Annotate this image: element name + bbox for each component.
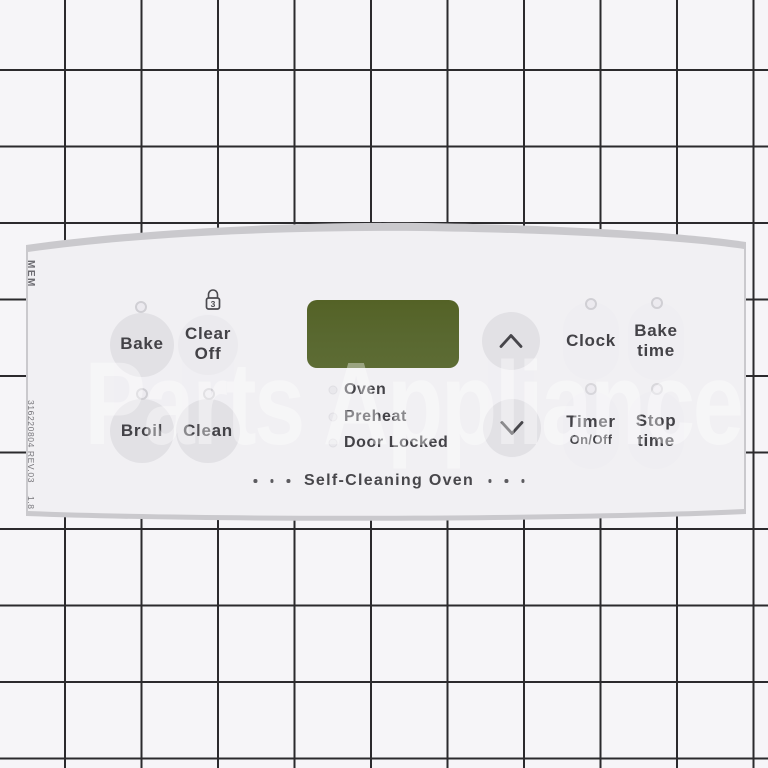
edge-label-mem: MEM <box>25 260 36 288</box>
edge-label-part-number: 316220804 REV.03 <box>26 400 36 483</box>
lock-hold-seconds: 3 <box>211 299 216 309</box>
product-photo-oven-keypad: Parts Appliance MEM 316220804 REV.03 1.8 <box>0 0 768 768</box>
edge-label-rev-extra: 1.8 <box>26 496 36 510</box>
bake-time-indicator-dot <box>651 297 663 309</box>
footer-dots-right <box>488 479 525 483</box>
clock-indicator-dot <box>585 298 597 310</box>
footer-dots-left <box>253 479 290 483</box>
watermark-overlay-text: Parts Appliance <box>84 336 683 472</box>
bake-indicator-dot <box>135 301 147 313</box>
lock-icon: 3 <box>203 287 223 313</box>
self-cleaning-footer: Self-Cleaning Oven <box>253 472 524 490</box>
self-cleaning-label: Self-Cleaning Oven <box>304 472 474 490</box>
